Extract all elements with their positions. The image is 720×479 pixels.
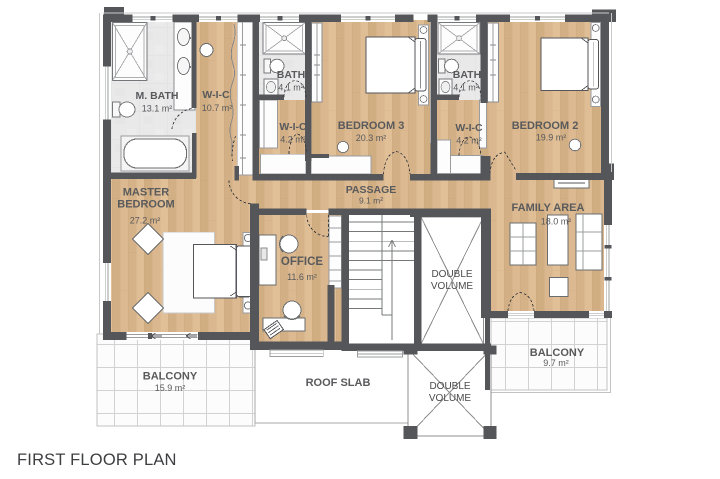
svg-text:FIRST FLOOR PLAN: FIRST FLOOR PLAN: [17, 451, 177, 469]
svg-text:11.6 m²: 11.6 m²: [287, 272, 317, 282]
svg-text:FAMILY AREA: FAMILY AREA: [512, 202, 585, 214]
svg-text:9.7 m²: 9.7 m²: [543, 358, 569, 368]
svg-text:M. BATH: M. BATH: [136, 90, 179, 102]
svg-text:10.7 m²: 10.7 m²: [202, 103, 233, 113]
svg-text:VOLUME: VOLUME: [429, 393, 472, 404]
svg-text:PASSAGE: PASSAGE: [346, 184, 397, 196]
svg-text:4.2 m²: 4.2 m²: [280, 135, 306, 145]
svg-text:BATH: BATH: [453, 69, 481, 81]
svg-text:BATH: BATH: [277, 69, 305, 81]
svg-text:W-I-C: W-I-C: [279, 121, 307, 133]
svg-text:DOUBLE: DOUBLE: [431, 269, 472, 280]
svg-text:BEDROOM 2: BEDROOM 2: [512, 120, 579, 132]
svg-text:4.1 m²: 4.1 m²: [453, 83, 479, 93]
svg-text:9.1 m²: 9.1 m²: [359, 196, 383, 206]
svg-text:18.0 m²: 18.0 m²: [541, 217, 572, 227]
svg-text:20.3 m²: 20.3 m²: [356, 133, 387, 143]
svg-text:4.2 m²: 4.2 m²: [456, 136, 482, 146]
svg-text:W-I-C: W-I-C: [455, 122, 483, 134]
svg-text:W-I-C: W-I-C: [202, 89, 230, 101]
svg-text:19.9 m²: 19.9 m²: [536, 133, 567, 143]
svg-text:BALCONY: BALCONY: [143, 371, 198, 383]
svg-text:15.9 m²: 15.9 m²: [155, 383, 186, 393]
svg-text:MASTER: MASTER: [123, 187, 170, 199]
svg-text:4.1 m²: 4.1 m²: [278, 83, 304, 93]
svg-text:VOLUME: VOLUME: [431, 281, 474, 292]
svg-text:ROOF SLAB: ROOF SLAB: [306, 377, 371, 389]
svg-text:OFFICE: OFFICE: [281, 256, 323, 268]
svg-text:13.1 m²: 13.1 m²: [142, 104, 173, 114]
svg-text:BEDROOM: BEDROOM: [117, 199, 174, 211]
svg-text:27.2 m²: 27.2 m²: [130, 216, 161, 226]
svg-text:BEDROOM 3: BEDROOM 3: [338, 120, 405, 132]
svg-text:DOUBLE: DOUBLE: [429, 381, 470, 392]
